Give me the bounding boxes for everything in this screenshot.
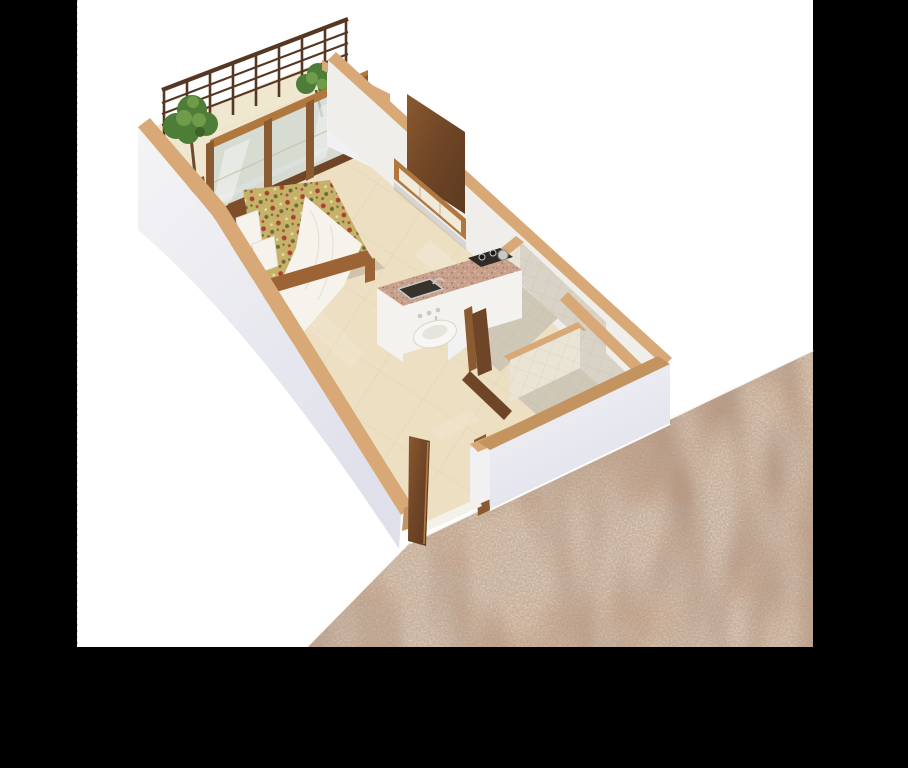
foliage-tuft bbox=[317, 79, 328, 90]
foliage-tuft bbox=[176, 110, 192, 126]
bed-leg bbox=[365, 258, 375, 283]
stove-burner bbox=[479, 254, 485, 260]
basin-knob bbox=[436, 308, 441, 313]
render-stage bbox=[0, 0, 908, 768]
foliage-tuft bbox=[306, 72, 318, 84]
stove-burner bbox=[490, 250, 496, 256]
foliage-tuft bbox=[187, 96, 199, 108]
floor-plan-render bbox=[0, 0, 908, 768]
basin-knob bbox=[427, 311, 432, 316]
foliage-tuft bbox=[195, 127, 205, 137]
basin-knob bbox=[418, 314, 423, 319]
door-frame-post bbox=[306, 99, 314, 181]
stove-pan bbox=[498, 250, 508, 260]
foliage-tuft bbox=[192, 113, 206, 127]
